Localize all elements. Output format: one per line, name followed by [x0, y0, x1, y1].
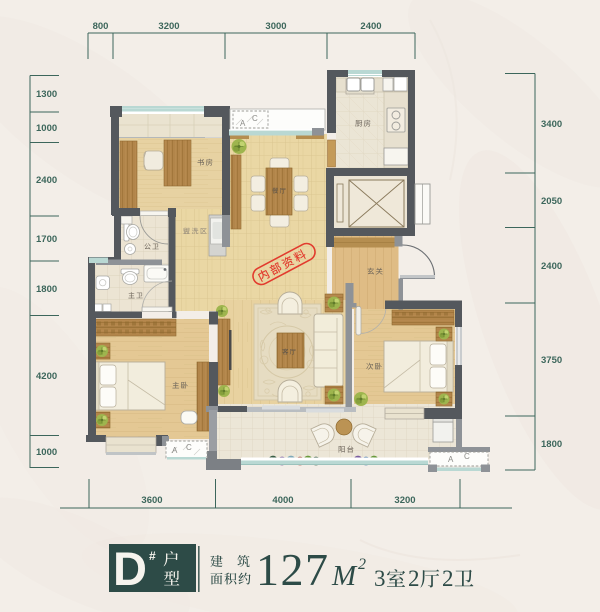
svg-text:3000: 3000 [265, 21, 286, 32]
svg-text:4200: 4200 [36, 371, 57, 382]
svg-text:C: C [252, 114, 258, 123]
svg-text:M: M [331, 560, 358, 592]
svg-text:1800: 1800 [541, 439, 562, 450]
svg-text:2400: 2400 [360, 21, 381, 32]
svg-text:127: 127 [256, 544, 330, 595]
svg-text:2400: 2400 [541, 261, 562, 272]
svg-text:3: 3 [374, 566, 386, 591]
svg-text:A: A [448, 455, 454, 464]
svg-text:1000: 1000 [36, 123, 57, 134]
svg-text:3600: 3600 [141, 495, 162, 506]
svg-text:1800: 1800 [36, 284, 57, 295]
svg-text:3750: 3750 [541, 355, 562, 366]
svg-text:3400: 3400 [541, 119, 562, 130]
svg-text:1700: 1700 [36, 234, 57, 245]
svg-text:1300: 1300 [36, 89, 57, 100]
svg-text:2: 2 [442, 566, 454, 591]
svg-text:2400: 2400 [36, 175, 57, 186]
svg-text:800: 800 [93, 21, 109, 32]
svg-text:A: A [172, 446, 178, 455]
svg-text:3200: 3200 [158, 21, 179, 32]
svg-text:#: # [149, 549, 156, 563]
svg-text:2050: 2050 [541, 196, 562, 207]
svg-text:2: 2 [408, 566, 420, 591]
svg-text:1000: 1000 [36, 447, 57, 458]
svg-text:C: C [464, 452, 470, 461]
svg-text:D: D [113, 542, 147, 595]
svg-text:3200: 3200 [394, 495, 415, 506]
svg-text:A: A [240, 119, 246, 128]
svg-text:2: 2 [358, 556, 366, 573]
svg-text:4000: 4000 [272, 495, 293, 506]
svg-text:C: C [186, 443, 192, 452]
